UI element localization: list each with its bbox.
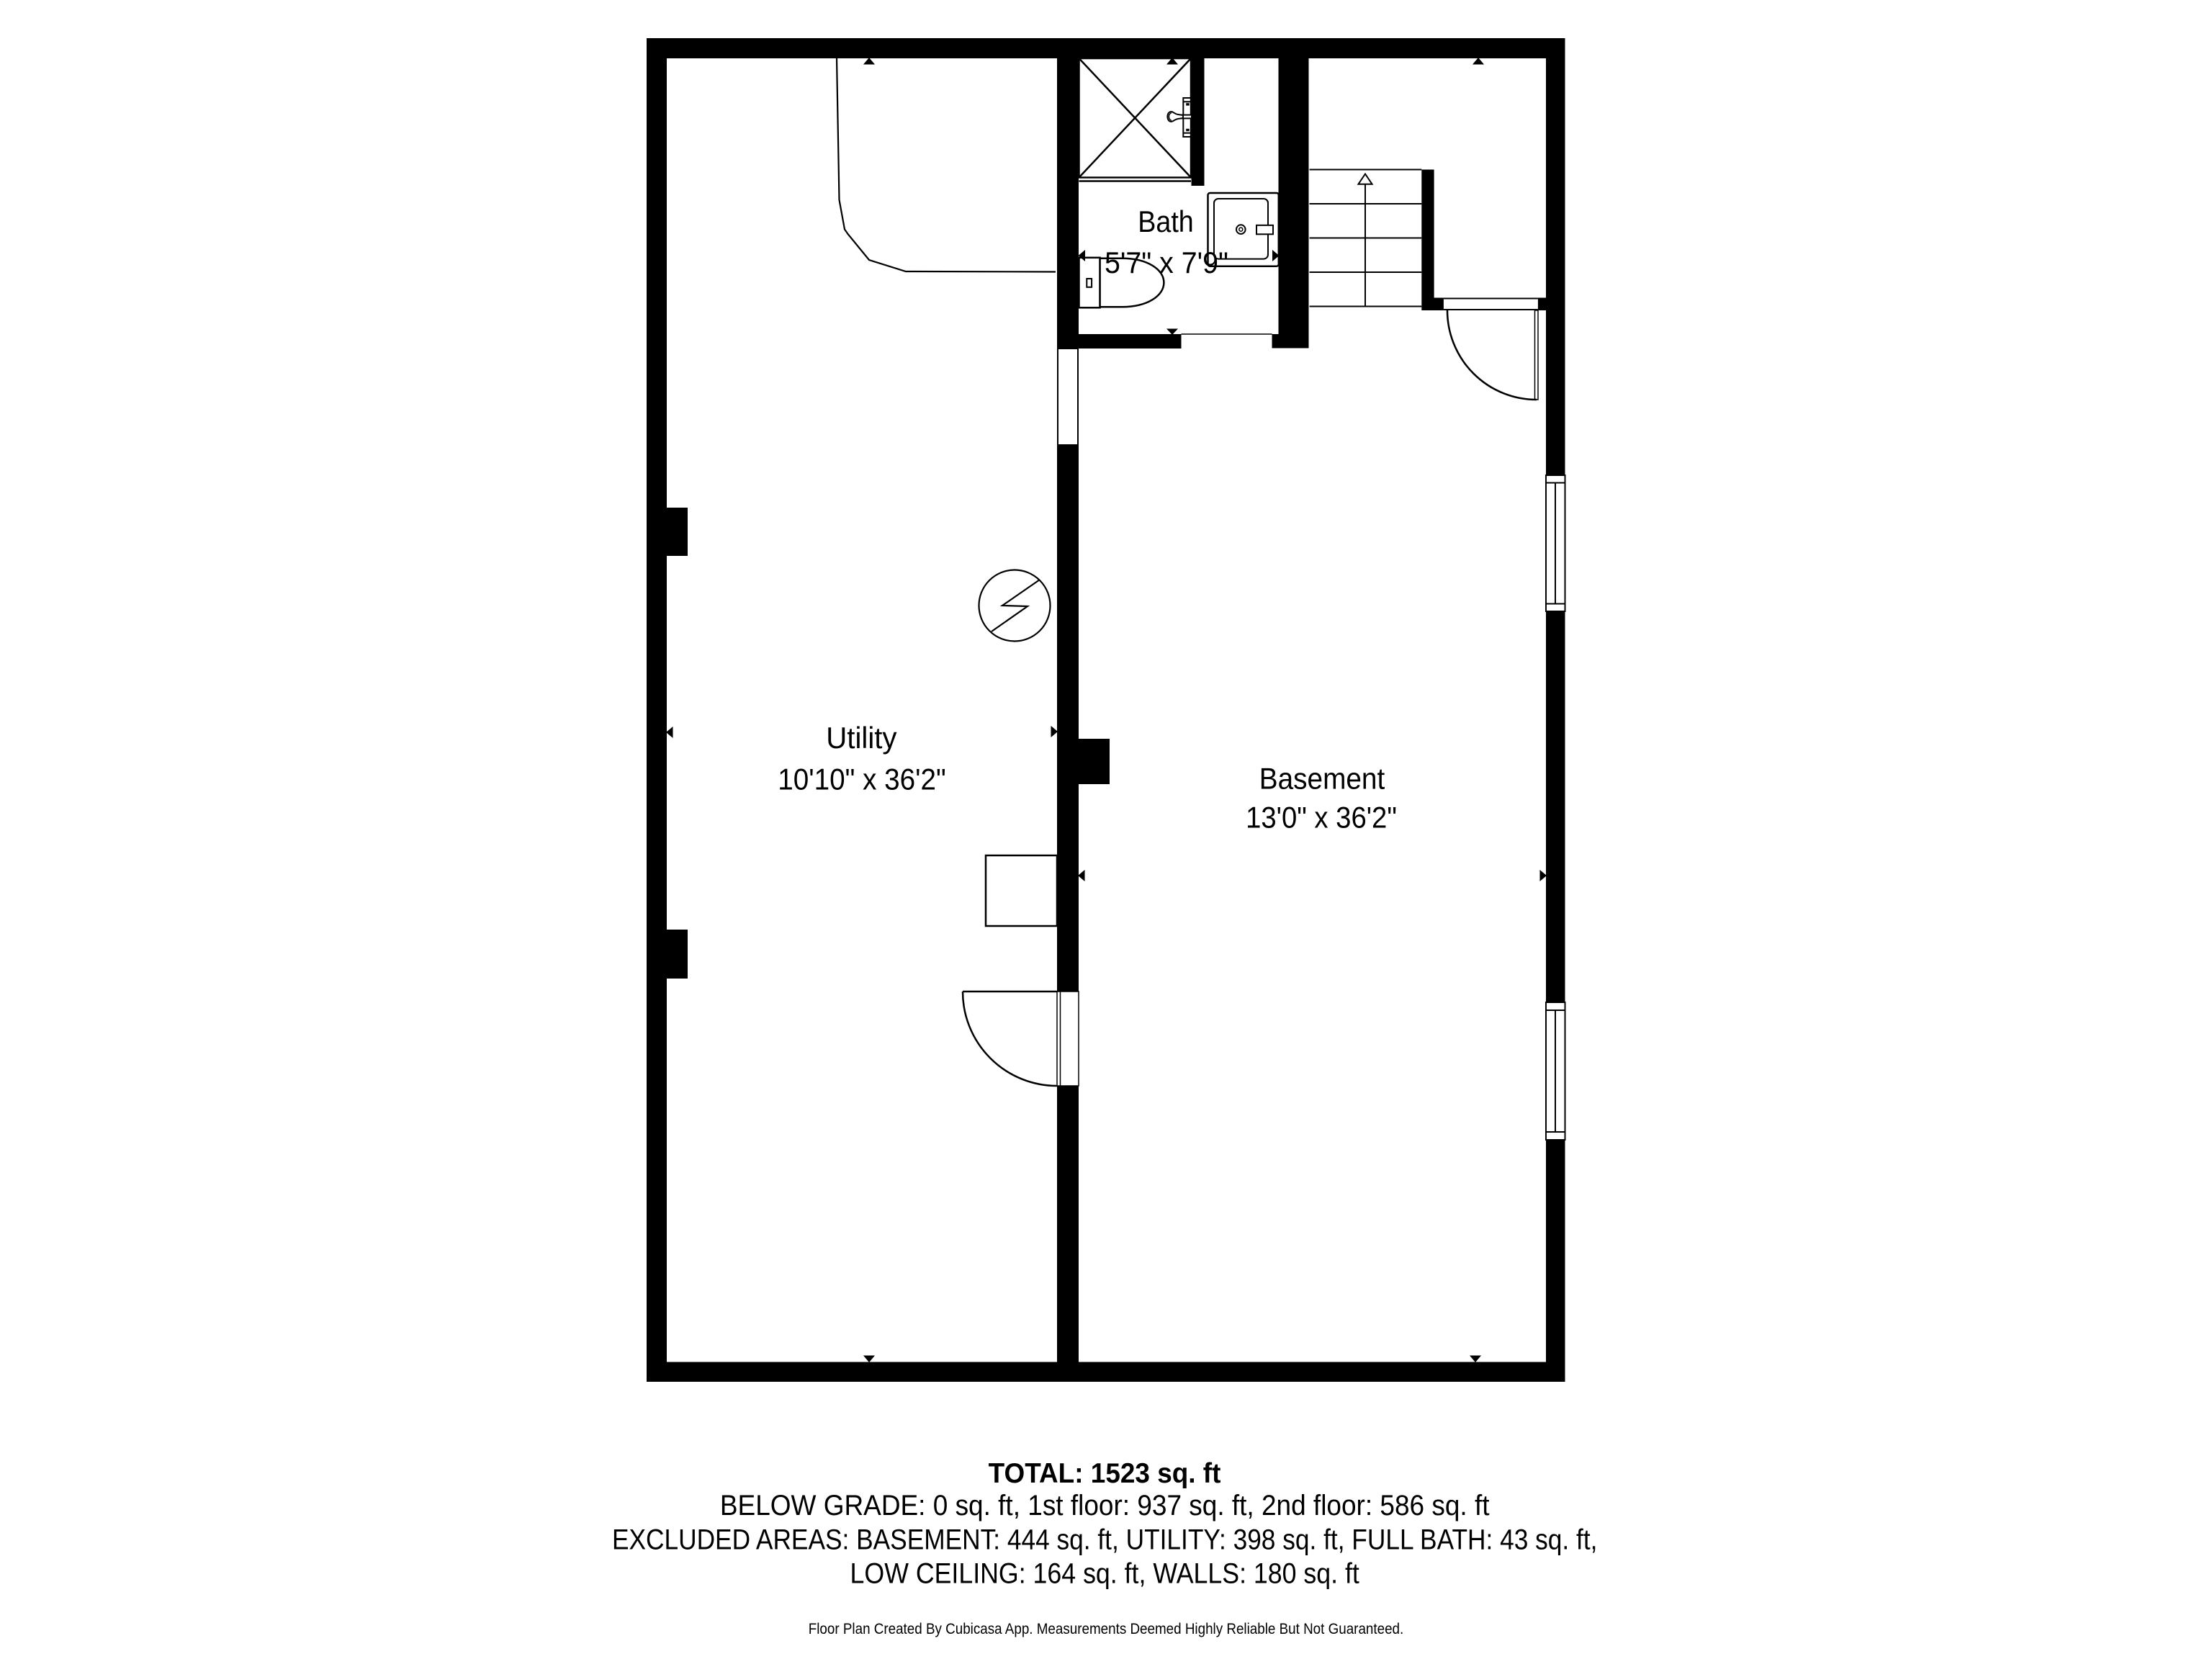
svg-text:Floor Plan Created By Cubicasa: Floor Plan Created By Cubicasa App. Meas…: [809, 1620, 1404, 1637]
svg-text:13'0" x 36'2": 13'0" x 36'2": [1246, 800, 1397, 834]
svg-text:Utility: Utility: [826, 721, 896, 755]
svg-text:10'10" x 36'2": 10'10" x 36'2": [778, 763, 945, 796]
svg-text:5'7" x 7'9": 5'7" x 7'9": [1105, 246, 1228, 279]
svg-text:LOW CEILING: 164 sq. ft, WALLS: LOW CEILING: 164 sq. ft, WALLS: 180 sq. …: [850, 1558, 1359, 1590]
svg-text:BELOW GRADE: 0 sq. ft, 1st flo: BELOW GRADE: 0 sq. ft, 1st floor: 937 sq…: [720, 1490, 1490, 1521]
svg-text:EXCLUDED AREAS: BASEMENT: 444: EXCLUDED AREAS: BASEMENT: 444 sq. ft, UT…: [612, 1524, 1598, 1556]
svg-text:Basement: Basement: [1259, 761, 1385, 795]
svg-text:Bath: Bath: [1138, 204, 1194, 238]
svg-text:TOTAL: 1523 sq. ft: TOTAL: 1523 sq. ft: [989, 1458, 1221, 1489]
